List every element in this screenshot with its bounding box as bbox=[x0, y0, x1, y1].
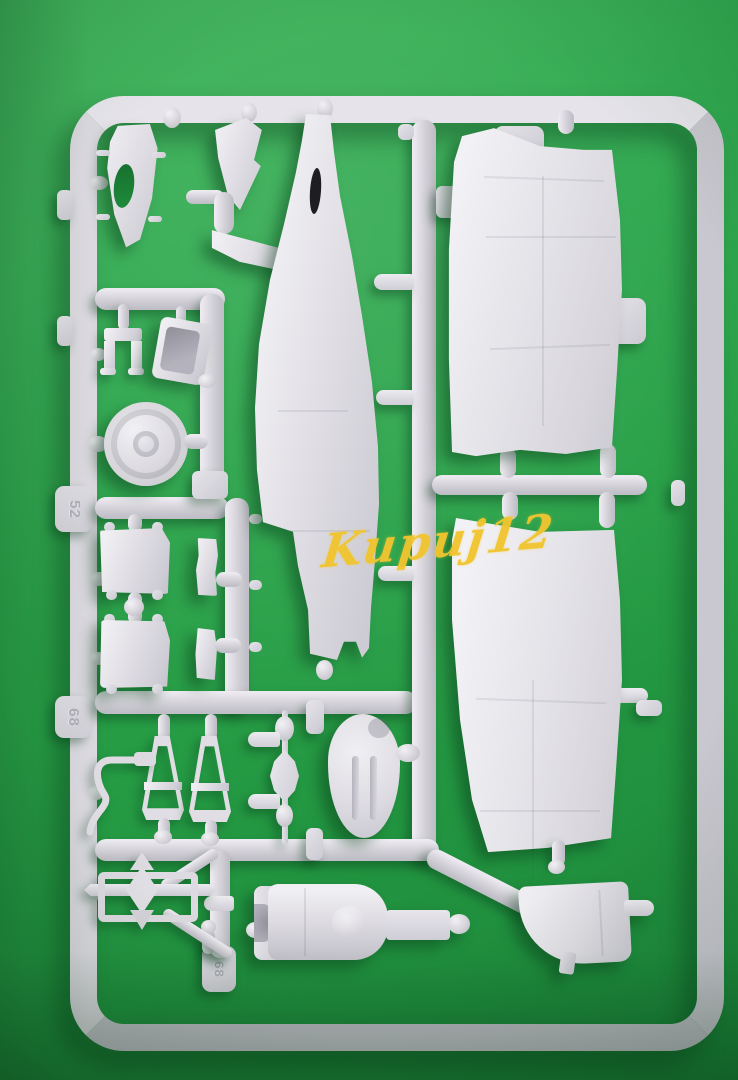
panel-line bbox=[486, 236, 616, 238]
chain-gate bbox=[248, 732, 280, 747]
rail-tab bbox=[57, 190, 73, 220]
box-corner bbox=[152, 684, 163, 694]
strip-gate bbox=[216, 572, 242, 587]
gear-leg-assembly bbox=[80, 852, 230, 944]
embossed-number-bottom: 68 bbox=[212, 961, 227, 977]
sprue-photo: 52 68 68 bbox=[0, 0, 738, 1080]
gate-ball bbox=[124, 598, 144, 616]
gate-ball bbox=[548, 860, 565, 874]
strut-outline bbox=[189, 736, 231, 822]
strip-gate bbox=[215, 638, 241, 653]
small-strip-1 bbox=[196, 538, 218, 596]
nose-pin bbox=[148, 216, 162, 222]
engine-cowling bbox=[246, 882, 472, 964]
main-wheel bbox=[104, 402, 188, 486]
assembly-point-up bbox=[130, 852, 154, 870]
nose-pin bbox=[96, 150, 110, 156]
oval-slot bbox=[370, 756, 377, 820]
bracket-stem bbox=[118, 304, 129, 330]
rail-stub bbox=[671, 480, 685, 506]
panel-line bbox=[480, 810, 600, 812]
oval-notch bbox=[368, 718, 390, 738]
nose-pin bbox=[152, 152, 166, 158]
strut-crossbar bbox=[191, 783, 229, 791]
fork-part bbox=[636, 700, 662, 716]
runner-h2 bbox=[95, 497, 229, 519]
upper-wing-panel bbox=[446, 116, 628, 462]
rail-tab bbox=[57, 316, 73, 346]
cowling-extension bbox=[386, 910, 450, 940]
gate-stub bbox=[624, 900, 654, 916]
radiator-box-2 bbox=[100, 620, 170, 688]
cowling-panel-line bbox=[304, 888, 306, 956]
small-strip-2 bbox=[195, 628, 217, 680]
gate-ball bbox=[198, 374, 216, 388]
embossed-number-middle: 68 bbox=[65, 708, 82, 727]
oval-slot bbox=[352, 756, 359, 820]
chain-gate bbox=[248, 794, 280, 809]
bracket-leg bbox=[131, 341, 142, 371]
bracket-foot bbox=[100, 368, 116, 375]
box-corner bbox=[106, 684, 117, 694]
runner-hr bbox=[432, 475, 647, 495]
panel-line bbox=[532, 680, 534, 880]
panel-line bbox=[542, 176, 544, 426]
bracket-top bbox=[104, 328, 142, 341]
landing-gear-strut-2 bbox=[189, 736, 231, 822]
box-body bbox=[100, 620, 170, 688]
cockpit-bracket bbox=[100, 304, 150, 378]
standing-tab bbox=[306, 828, 323, 860]
exhaust-chain bbox=[244, 708, 304, 848]
door-stub bbox=[559, 951, 577, 975]
bracket-leg bbox=[104, 341, 115, 371]
gate-ball bbox=[448, 914, 470, 934]
radiator-box-1 bbox=[100, 528, 170, 594]
box-corner bbox=[152, 590, 163, 600]
embossed-number-pad: 52 bbox=[55, 486, 93, 532]
wheel-gate bbox=[184, 434, 208, 449]
wheel-hub bbox=[133, 431, 159, 457]
box-body bbox=[100, 528, 170, 594]
runner-v3 bbox=[225, 498, 249, 712]
fuselage-half bbox=[250, 110, 384, 680]
embossed-number-pad: 68 bbox=[55, 696, 91, 738]
oval-cover bbox=[328, 714, 400, 838]
strip-body bbox=[195, 628, 217, 680]
box-corner bbox=[106, 590, 117, 600]
ejector-pad bbox=[192, 471, 228, 499]
strip-body bbox=[196, 538, 218, 596]
bracket-foot bbox=[128, 368, 144, 375]
cowling-boss bbox=[332, 906, 366, 938]
gate-ball bbox=[201, 832, 219, 846]
oval-body bbox=[328, 714, 400, 838]
gate-ball bbox=[396, 744, 420, 762]
gate-ball bbox=[316, 660, 333, 680]
antenna-wire bbox=[78, 744, 162, 840]
nose-pin bbox=[96, 214, 110, 220]
panel-line bbox=[278, 410, 348, 412]
wheel-bay-door bbox=[518, 882, 638, 970]
cowling-body bbox=[268, 884, 388, 960]
nose-half bbox=[96, 118, 166, 250]
upper-wing-body bbox=[446, 116, 628, 462]
runner-stub bbox=[398, 124, 414, 140]
embossed-number-upper: 52 bbox=[66, 500, 83, 519]
hanging-tab bbox=[306, 700, 324, 734]
